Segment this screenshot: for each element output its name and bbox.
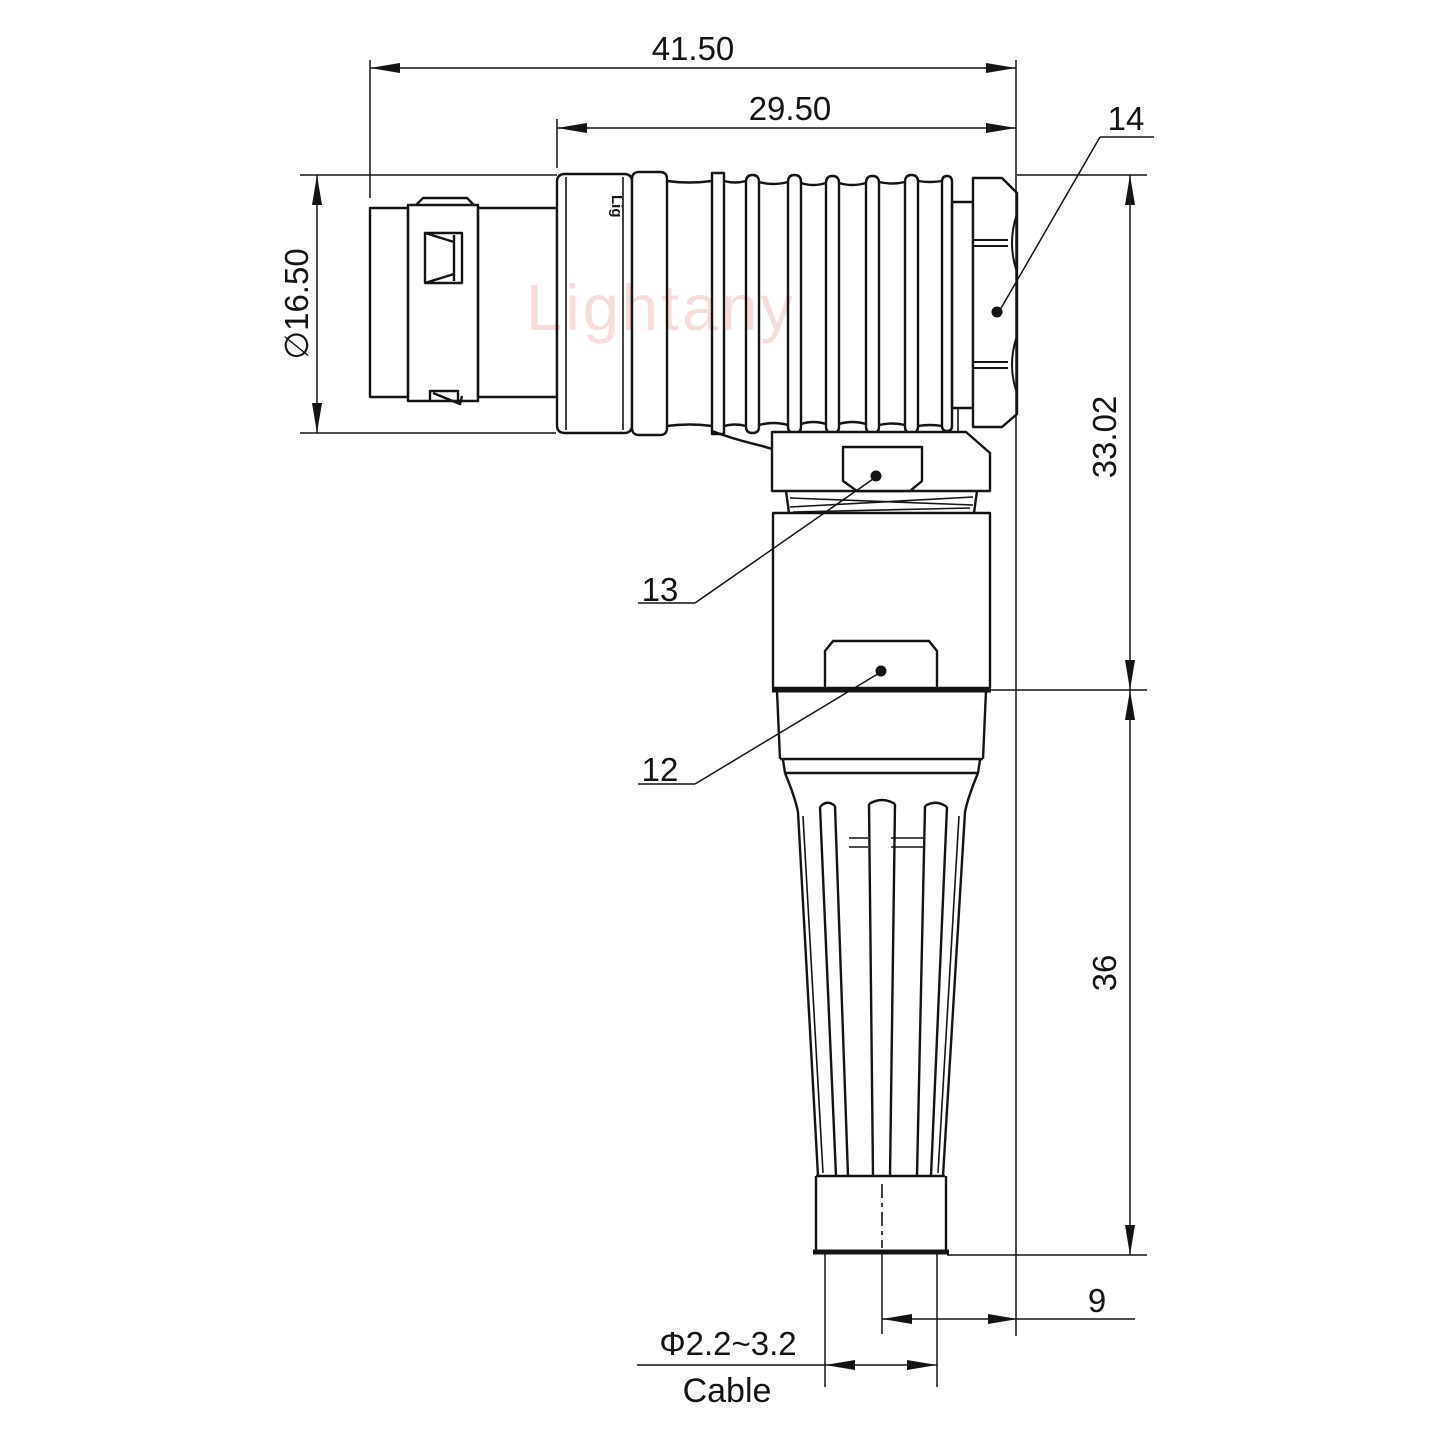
boot-groove-band <box>849 838 924 847</box>
dim-boot-height-text: 36 <box>1086 955 1123 992</box>
callout-12-text: 12 <box>642 751 679 788</box>
boot-transition <box>777 691 986 773</box>
dim-tail-length-text: 9 <box>1088 1282 1106 1319</box>
dim-overall-length-text: 41.50 <box>652 30 735 67</box>
dim-cable-arrow-right <box>907 1360 937 1370</box>
dim-29-arrow-right <box>986 123 1016 133</box>
cable-end-cap <box>816 1176 946 1250</box>
dim-3302-arrow-top <box>1125 175 1135 205</box>
fin-4 <box>866 176 879 433</box>
dim-3302-arrow-bottom <box>1125 660 1135 690</box>
engraved-marking: Lig <box>608 195 625 218</box>
technical-drawing-connector-elbow: 41.50 29.50 ∅16.50 33.02 36 9 Φ2.2~3.2 C… <box>0 0 1440 1440</box>
callout-14-text: 14 <box>1108 100 1145 137</box>
neck-band <box>952 202 973 408</box>
dim-elbow-height-text: 33.02 <box>1086 396 1123 479</box>
cable-label-text: Cable <box>683 1372 772 1410</box>
dim-plug-diameter-text: ∅16.50 <box>278 248 315 359</box>
leader-14-dot <box>992 307 1003 318</box>
collar-flat <box>843 447 922 491</box>
body-cylinder <box>773 513 990 688</box>
serration-lines <box>790 497 973 512</box>
dim-36-arrow-top <box>1125 690 1135 720</box>
dim-d165-arrow-top <box>312 175 322 205</box>
key-window <box>425 233 462 283</box>
dim-9-arrow-left <box>882 1314 912 1324</box>
leader-13-dot <box>871 471 882 482</box>
boot-rib-2 <box>869 800 895 1176</box>
elbow-fillet <box>712 431 772 449</box>
latch-collar <box>408 205 478 401</box>
leader-14 <box>1000 137 1154 310</box>
fin-5 <box>905 175 918 433</box>
dim-d165-arrow-bottom <box>312 403 322 433</box>
dim-cable-diameter-text: Φ2.2~3.2 <box>659 1325 796 1362</box>
callout-13-text: 13 <box>642 571 679 608</box>
dim-41-arrow-right <box>986 63 1016 73</box>
dim-cable-arrow-left <box>825 1360 855 1370</box>
boot-contours <box>803 816 959 1173</box>
plug-tip <box>370 208 408 397</box>
boot-rib-3 <box>917 803 947 1176</box>
fin-3 <box>826 176 839 433</box>
brand-watermark: Lightany <box>526 271 796 344</box>
dim-41-arrow-left <box>370 63 400 73</box>
fin-6 <box>942 176 952 431</box>
connector-body <box>712 431 991 1252</box>
dim-body-length-text: 29.50 <box>749 90 832 127</box>
hex-nut <box>973 178 1017 427</box>
dim-29-arrow-left <box>557 123 587 133</box>
boot-rib-1 <box>820 803 848 1176</box>
ext-lines-left <box>300 175 557 433</box>
dim-36-arrow-bottom <box>1125 1225 1135 1255</box>
drawing-canvas: 41.50 29.50 ∅16.50 33.02 36 9 Φ2.2~3.2 C… <box>0 0 1440 1440</box>
dim-9-arrow-right <box>988 1314 1018 1324</box>
leader-12-dot <box>876 666 887 677</box>
boot-flare <box>785 773 978 812</box>
